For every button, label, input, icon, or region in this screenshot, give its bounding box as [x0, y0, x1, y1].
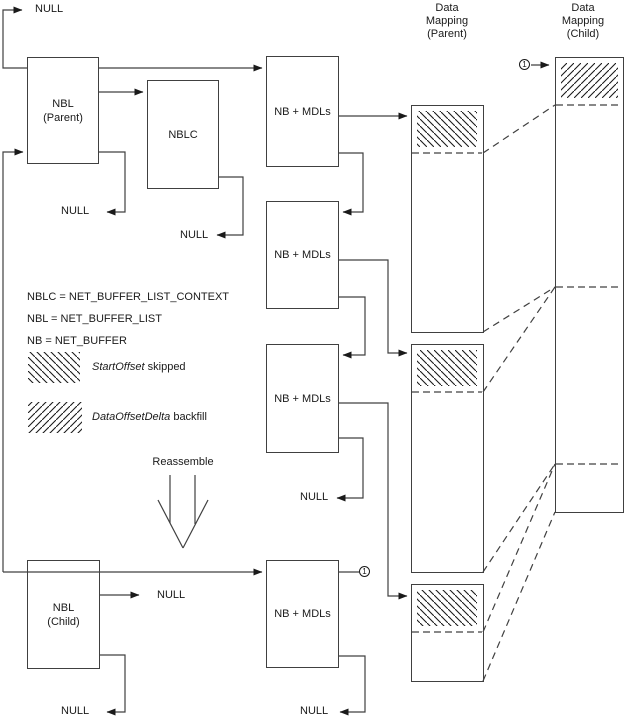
data-mapping-child-header: Data Mapping (Child): [543, 2, 623, 41]
data-mapping-parent-block-2: [411, 344, 484, 573]
mapping-diagonal-5: [483, 464, 555, 632]
data-mapping-parent-header: Data Mapping (Parent): [407, 2, 487, 41]
diagram-canvas: NBL (Parent) NBLC NB + MDLs NB + MDLs NB…: [0, 0, 628, 723]
legend-caption-data-offset-delta: DataOffsetDelta backfill: [92, 411, 207, 424]
legend-def-nblc: NBLC = NET_BUFFER_LIST_CONTEXT: [27, 291, 229, 304]
connector-nb1-to-nb2: [338, 153, 363, 212]
connector-nb3-to-parent-block-3: [338, 403, 407, 596]
nblc-label: NBLC: [168, 128, 197, 142]
legend-def-nb: NB = NET_BUFFER: [27, 335, 127, 348]
nblc-box: NBLC: [147, 80, 219, 189]
legend-caption-start-offset: StartOffset skipped: [92, 361, 186, 374]
legend-swatch-data-offset-delta: [28, 402, 82, 433]
mapping-diagonal-3: [483, 287, 555, 392]
legend-def-nbl: NBL = NET_BUFFER_LIST: [27, 313, 162, 326]
nb-mdls-box-1: NB + MDLs: [266, 56, 339, 167]
data-offset-delta-term: DataOffsetDelta: [92, 411, 170, 423]
null-label-nbl-child-bottom: NULL: [61, 705, 89, 718]
connector-nb3-to-null: [337, 438, 363, 498]
connector-nbl-parent-to-null-below: [98, 152, 125, 212]
nb-mdls-child-box: NB + MDLs: [266, 560, 339, 668]
connector-nb4-to-null-bottom: [338, 656, 365, 712]
connector-nbl-child-to-null-bottom: [99, 655, 125, 712]
nb-mdls-box-3: NB + MDLs: [266, 344, 339, 453]
nb-mdls-box-2: NB + MDLs: [266, 201, 339, 309]
nb-mdls-label: NB + MDLs: [274, 392, 331, 406]
mapping-diagonal-1: [483, 105, 555, 153]
connector-child-loop-to-nbl-parent: [3, 152, 23, 572]
connector-nbl-parent-to-null-top: [3, 10, 27, 68]
legend-swatch-start-offset: [28, 352, 80, 383]
mapping-diagonal-6: [483, 512, 555, 681]
nbl-child-label: NBL (Child): [47, 601, 79, 629]
mapping-diagonal-4: [483, 464, 555, 572]
null-label-top: NULL: [35, 3, 63, 16]
connector-nb2-to-parent-block-2: [338, 260, 407, 353]
nbl-child-box: NBL (Child): [27, 560, 100, 669]
nb-mdls-label: NB + MDLs: [274, 607, 331, 621]
marker-1-child-top: 1: [519, 59, 530, 70]
connector-nblc-to-null: [217, 177, 243, 235]
data-mapping-child-column: [555, 57, 624, 513]
null-label-below-nbl-parent: NULL: [61, 205, 89, 218]
start-offset-term: StartOffset: [92, 361, 145, 373]
data-offset-delta-rest: backfill: [170, 411, 207, 423]
mapping-diagonal-2: [483, 287, 555, 332]
marker-1-nb4: 1: [359, 566, 370, 577]
data-mapping-parent-block-3: [411, 584, 484, 682]
data-mapping-parent-block-1: [411, 105, 484, 333]
reassemble-arrow: [158, 475, 208, 548]
nb-mdls-label: NB + MDLs: [274, 105, 331, 119]
connector-nb2-to-nb3: [338, 297, 365, 355]
start-offset-rest: skipped: [145, 361, 186, 373]
nbl-parent-label: NBL (Parent): [43, 97, 83, 125]
null-label-below-nblc: NULL: [180, 229, 208, 242]
null-label-nb4-bottom: NULL: [300, 705, 328, 718]
reassemble-label: Reassemble: [143, 456, 223, 469]
nbl-parent-box: NBL (Parent): [27, 57, 99, 164]
null-label-nbl-child-right: NULL: [157, 589, 185, 602]
null-label-nb3-next: NULL: [300, 491, 328, 504]
nb-mdls-label: NB + MDLs: [274, 248, 331, 262]
